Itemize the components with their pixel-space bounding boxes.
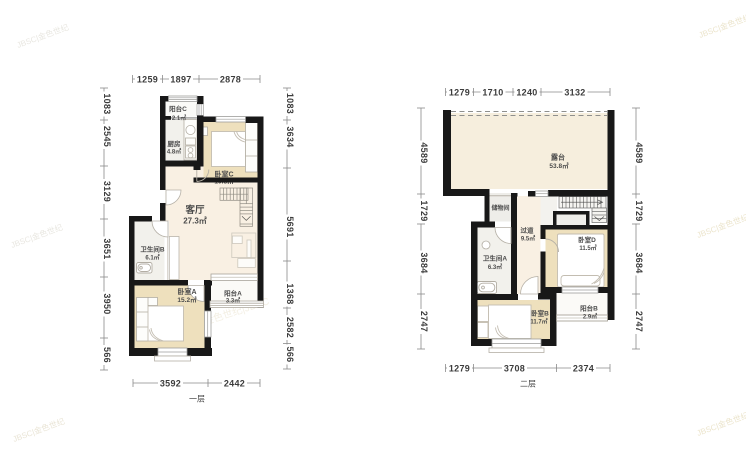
svg-text:5691: 5691 (285, 216, 295, 237)
svg-text:1710: 1710 (482, 88, 503, 98)
svg-text:566: 566 (102, 347, 112, 363)
svg-text:过道: 过道 (521, 226, 535, 235)
svg-text:4589: 4589 (634, 142, 644, 163)
svg-text:卫生间B: 卫生间B (140, 245, 165, 254)
svg-text:9.5㎡: 9.5㎡ (521, 235, 535, 243)
svg-text:1279: 1279 (449, 364, 470, 374)
svg-text:卧室B: 卧室B (531, 309, 549, 318)
svg-text:1259: 1259 (137, 75, 158, 85)
svg-text:2.9㎡: 2.9㎡ (583, 313, 597, 321)
svg-text:1083: 1083 (285, 93, 295, 114)
svg-text:2878: 2878 (220, 75, 241, 85)
svg-text:3592: 3592 (160, 379, 181, 389)
svg-text:3684: 3684 (634, 252, 644, 273)
svg-text:3708: 3708 (504, 364, 525, 374)
svg-text:1240: 1240 (516, 88, 537, 98)
svg-text:厨房: 厨房 (168, 139, 182, 148)
svg-text:1279: 1279 (449, 88, 470, 98)
svg-text:卧室D: 卧室D (578, 235, 596, 244)
svg-text:露台: 露台 (551, 153, 565, 162)
svg-text:储物间: 储物间 (490, 204, 509, 212)
svg-text:一层: 一层 (189, 395, 205, 404)
svg-text:阳台B: 阳台B (580, 304, 598, 313)
svg-text:1729: 1729 (419, 200, 429, 221)
svg-text:566: 566 (285, 347, 295, 363)
svg-text:1897: 1897 (170, 75, 191, 85)
svg-text:3950: 3950 (102, 293, 112, 314)
svg-text:二层: 二层 (520, 380, 536, 389)
svg-text:3.3㎡: 3.3㎡ (226, 297, 240, 305)
svg-text:2747: 2747 (419, 311, 429, 332)
svg-text:2545: 2545 (102, 126, 112, 147)
svg-text:11.7㎡: 11.7㎡ (530, 318, 547, 326)
svg-text:1729: 1729 (634, 200, 644, 221)
svg-text:4589: 4589 (419, 142, 429, 163)
svg-text:1368: 1368 (285, 283, 295, 304)
svg-text:3129: 3129 (102, 181, 112, 202)
svg-text:53.8㎡: 53.8㎡ (549, 161, 569, 170)
svg-text:卧室A: 卧室A (177, 287, 196, 296)
svg-text:2582: 2582 (285, 317, 295, 338)
svg-text:2374: 2374 (573, 364, 594, 374)
svg-text:11.5㎡: 11.5㎡ (579, 244, 596, 252)
svg-text:6.3㎡: 6.3㎡ (488, 263, 502, 271)
svg-text:卧室C: 卧室C (214, 170, 233, 179)
svg-text:1083: 1083 (102, 93, 112, 114)
svg-text:卫生间A: 卫生间A (483, 254, 508, 263)
svg-text:阳台A: 阳台A (224, 289, 242, 298)
svg-text:3634: 3634 (285, 126, 295, 147)
svg-text:阳台C: 阳台C (169, 104, 187, 113)
svg-text:3651: 3651 (102, 238, 112, 259)
svg-text:27.3㎡: 27.3㎡ (183, 216, 207, 226)
svg-text:3132: 3132 (564, 88, 585, 98)
svg-text:6.1㎡: 6.1㎡ (145, 254, 159, 262)
svg-text:2747: 2747 (634, 311, 644, 332)
svg-text:15.2㎡: 15.2㎡ (177, 295, 197, 304)
svg-text:3684: 3684 (419, 252, 429, 273)
svg-text:客厅: 客厅 (184, 204, 205, 216)
svg-text:2.1㎡: 2.1㎡ (172, 114, 186, 122)
svg-text:2442: 2442 (224, 379, 245, 389)
svg-text:4.8㎡: 4.8㎡ (167, 148, 181, 156)
